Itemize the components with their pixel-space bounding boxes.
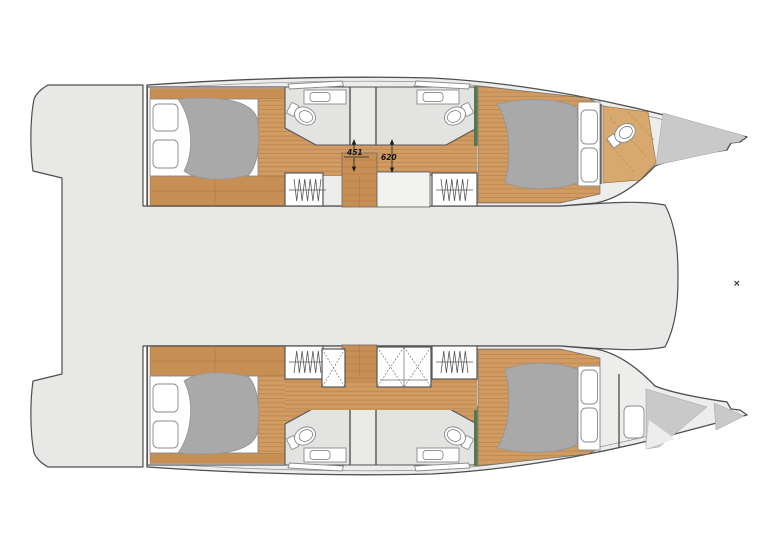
corner-x-marker: × [733, 279, 741, 289]
floor-plan-canvas: 451 620 × [0, 0, 770, 550]
hull-starboard [147, 345, 747, 475]
side-berth [377, 172, 430, 207]
catamaran-floor-plan: 451 620 × [0, 0, 770, 550]
hull-port [147, 77, 747, 207]
dimension-label: 620 [381, 153, 397, 162]
cabinet-small [322, 349, 345, 387]
dimension-label: 451 [347, 148, 363, 157]
bow-tip [656, 113, 745, 165]
cabinet-double [377, 347, 431, 387]
bow-head [601, 104, 656, 184]
